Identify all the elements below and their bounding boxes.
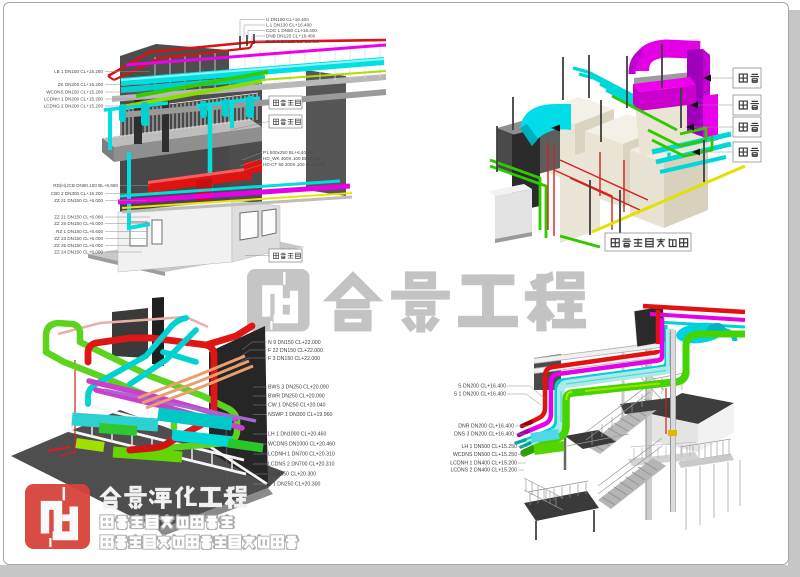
svg-text:L 1 DN130 CL+16.400: L 1 DN130 CL+16.400 — [266, 23, 312, 28]
svg-text:DNB DN125 CL+16.400: DNB DN125 CL+16.400 — [266, 34, 316, 39]
svg-text:WCDNS DN500 CL+15.250: WCDNS DN500 CL+15.250 — [453, 452, 517, 458]
svg-text:S DN350 CL+20.300: S DN350 CL+20.300 — [268, 472, 316, 478]
svg-text:LH 1 DN500 CL+15.250: LH 1 DN500 CL+15.250 — [461, 444, 517, 450]
svg-text:ZZ 25 DN150 CL+6.000: ZZ 25 DN150 CL+6.000 — [54, 243, 103, 248]
svg-text:WCDNS DN150 CL+15.200: WCDNS DN150 CL+15.200 — [46, 90, 103, 95]
svg-text:DNR DN200 CL+16.400: DNR DN200 CL+16.400 — [458, 424, 514, 430]
svg-text:WCDNS DN1000 CL+20.460: WCDNS DN1000 CL+20.460 — [268, 442, 335, 448]
svg-text:S 1 DN200 CL+16.400: S 1 DN200 CL+16.400 — [454, 392, 506, 398]
svg-text:LCDNS 2 DN400 CL+15.200: LCDNS 2 DN400 CL+15.200 — [451, 468, 518, 474]
svg-text:F 22 DN150 CL+22.000: F 22 DN150 CL+22.000 — [268, 348, 323, 354]
svg-text:CB0 2 DN300 CL+15.200: CB0 2 DN300 CL+15.200 — [51, 191, 104, 196]
svg-text:DNS 3 DN200 CL+16.400: DNS 3 DN200 CL+16.400 — [454, 432, 514, 438]
svg-text:LCDNH 1 DN200 CL+15.200: LCDNH 1 DN200 CL+15.200 — [44, 97, 104, 102]
svg-text:ZK DN200 CL+15.200: ZK DN200 CL+15.200 — [58, 82, 104, 87]
svg-text:N 9 DN150 CL+22.000: N 9 DN150 CL+22.000 — [268, 340, 321, 346]
svg-text:F 3 DN150 CL+22.000: F 3 DN150 CL+22.000 — [268, 356, 320, 362]
svg-text:LB 1 DN150 CL+15.250: LB 1 DN150 CL+15.250 — [54, 69, 103, 74]
svg-text:CDG 1 DN80 CL+16.400: CDG 1 DN80 CL+16.400 — [266, 28, 317, 33]
svg-text:P1 800x250 BL+6.400 m: P1 800x250 BL+6.400 m — [263, 150, 314, 155]
svg-text:LCDNG 2 DN200 CL+15.200: LCDNG 2 DN200 CL+15.200 — [44, 104, 104, 109]
svg-text:CW 1 DN250 CL+20.040: CW 1 DN250 CL+20.040 — [268, 403, 326, 409]
svg-text:ZZ 21 DN150 CL+6.000: ZZ 21 DN150 CL+6.000 — [54, 198, 103, 203]
svg-text:HD-CT 56 200X.100 BL+6.400: HD-CT 56 200X.100 BL+6.400 — [263, 162, 326, 167]
svg-text:BWS 3 DN250 CL+20.090: BWS 3 DN250 CL+20.090 — [268, 385, 329, 391]
svg-text:ZZ 21 DN150 CL+6.000: ZZ 21 DN150 CL+6.000 — [54, 215, 103, 220]
svg-text:NSWP 1 DN300 CL+19.960: NSWP 1 DN300 CL+19.960 — [268, 412, 332, 418]
svg-text:BWR DN250 CL+20.090: BWR DN250 CL+20.090 — [268, 394, 325, 400]
svg-text:ZZ 25 DN150 CL+6.000: ZZ 25 DN150 CL+6.000 — [54, 221, 103, 226]
svg-text:HD_WK 400X.100 BL+5.400: HD_WK 400X.100 BL+5.400 — [263, 156, 322, 161]
svg-text:RD(H)JCB DN80.100 BL+5.650: RD(H)JCB DN80.100 BL+5.650 — [53, 183, 118, 188]
svg-text:ZZ 23 DN150 CL+6.000: ZZ 23 DN150 CL+6.000 — [54, 236, 103, 241]
svg-text:DNS 3 DN125 CL+16.400: DNS 3 DN125 CL+16.400 — [266, 39, 319, 44]
svg-text:LCDNH 1 DN700 CL+20.310: LCDNH 1 DN700 CL+20.310 — [268, 452, 335, 458]
svg-text:LH 1 DN1000 CL+20.460: LH 1 DN1000 CL+20.460 — [268, 432, 327, 438]
svg-text:LCDNH 1 DN400 CL+15.200: LCDNH 1 DN400 CL+15.200 — [450, 461, 517, 467]
svg-text:RZ 1 DN180 CL+6.600: RZ 1 DN180 CL+6.600 — [56, 229, 103, 234]
svg-text:LCDNS 2 DN700 CL+20.310: LCDNS 2 DN700 CL+20.310 — [268, 462, 335, 468]
svg-text:U DN100 CL+16.400: U DN100 CL+16.400 — [266, 17, 309, 22]
svg-text:ZZ 24 DN150 CL+6.000: ZZ 24 DN150 CL+6.000 — [54, 250, 103, 255]
svg-text:S DN200 CL+16.400: S DN200 CL+16.400 — [458, 384, 506, 390]
svg-text:S 1 DN250 CL+20.300: S 1 DN250 CL+20.300 — [268, 482, 320, 488]
